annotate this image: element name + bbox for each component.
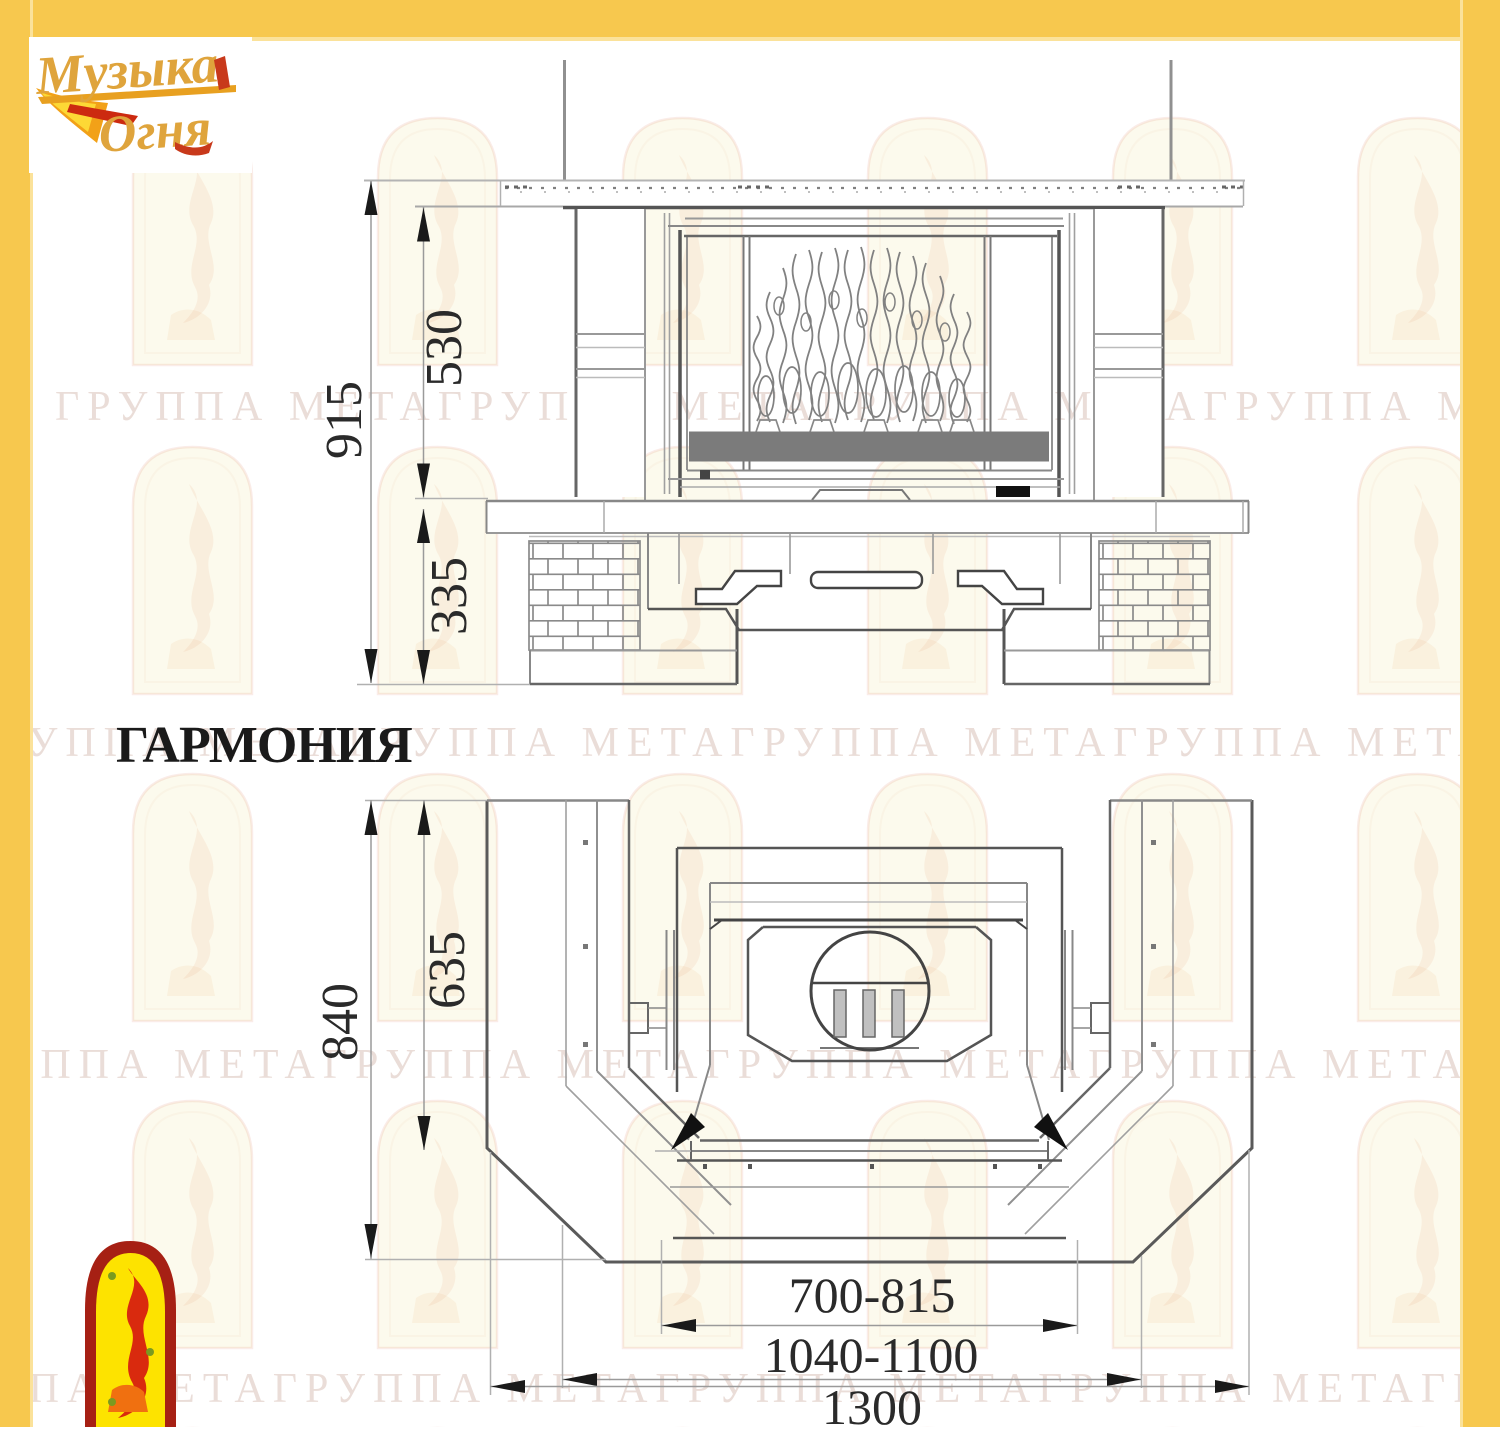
svg-text:335: 335 bbox=[421, 557, 478, 635]
svg-text:1300: 1300 bbox=[822, 1379, 922, 1427]
svg-text:ГАРМОНИЯ: ГАРМОНИЯ bbox=[116, 717, 412, 774]
svg-text:840: 840 bbox=[312, 983, 369, 1061]
svg-text:Музыка: Музыка bbox=[33, 33, 221, 106]
svg-text:ГРУППА МЕТАГРУППА МЕТАГРУППА М: ГРУППА МЕТАГРУППА МЕТАГРУППА МЕТАГРУППА … bbox=[0, 1042, 1500, 1088]
svg-text:915: 915 bbox=[316, 381, 373, 459]
svg-text:700-815: 700-815 bbox=[789, 1267, 956, 1323]
svg-text:635: 635 bbox=[419, 931, 476, 1009]
svg-text:ГРУППА МЕТАГРУППА МЕТАГРУППА М: ГРУППА МЕТАГРУППА МЕТАГРУППА МЕТАГРУППА … bbox=[0, 1366, 1500, 1412]
svg-text:530: 530 bbox=[416, 309, 473, 387]
svg-text:1040-1100: 1040-1100 bbox=[764, 1327, 979, 1383]
